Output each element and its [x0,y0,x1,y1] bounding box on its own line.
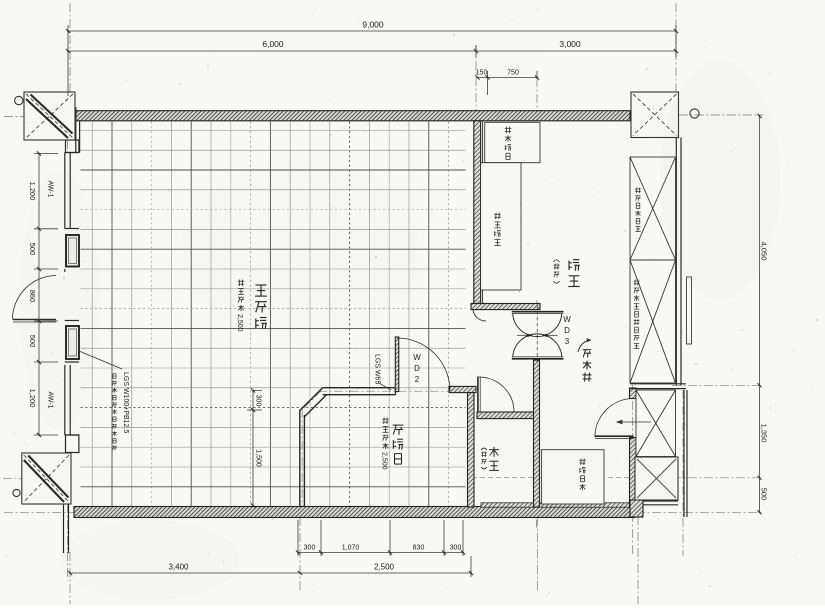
svg-text:2: 2 [415,375,420,384]
svg-text:9,000: 9,000 [362,20,384,30]
svg-text:500: 500 [760,488,769,501]
svg-text:300: 300 [255,395,262,407]
svg-text:W: W [563,315,571,324]
svg-text:LGS W65: LGS W65 [374,354,381,384]
svg-text:300: 300 [450,545,462,552]
svg-text:830: 830 [413,545,425,552]
svg-text:3,000: 3,000 [559,39,581,49]
svg-text:3: 3 [565,337,570,346]
svg-text:D: D [564,326,570,335]
svg-text:LGS W100+PB12.5: LGS W100+PB12.5 [122,372,129,433]
svg-text:300: 300 [304,545,316,552]
svg-text:1,350: 1,350 [760,424,769,443]
svg-text:2,500: 2,500 [380,452,387,470]
svg-text:W: W [413,353,421,362]
svg-text:1,500: 1,500 [255,449,262,467]
svg-text:D: D [414,364,420,373]
svg-text:2,500: 2,500 [374,563,395,572]
svg-text:1,070: 1,070 [342,545,360,552]
